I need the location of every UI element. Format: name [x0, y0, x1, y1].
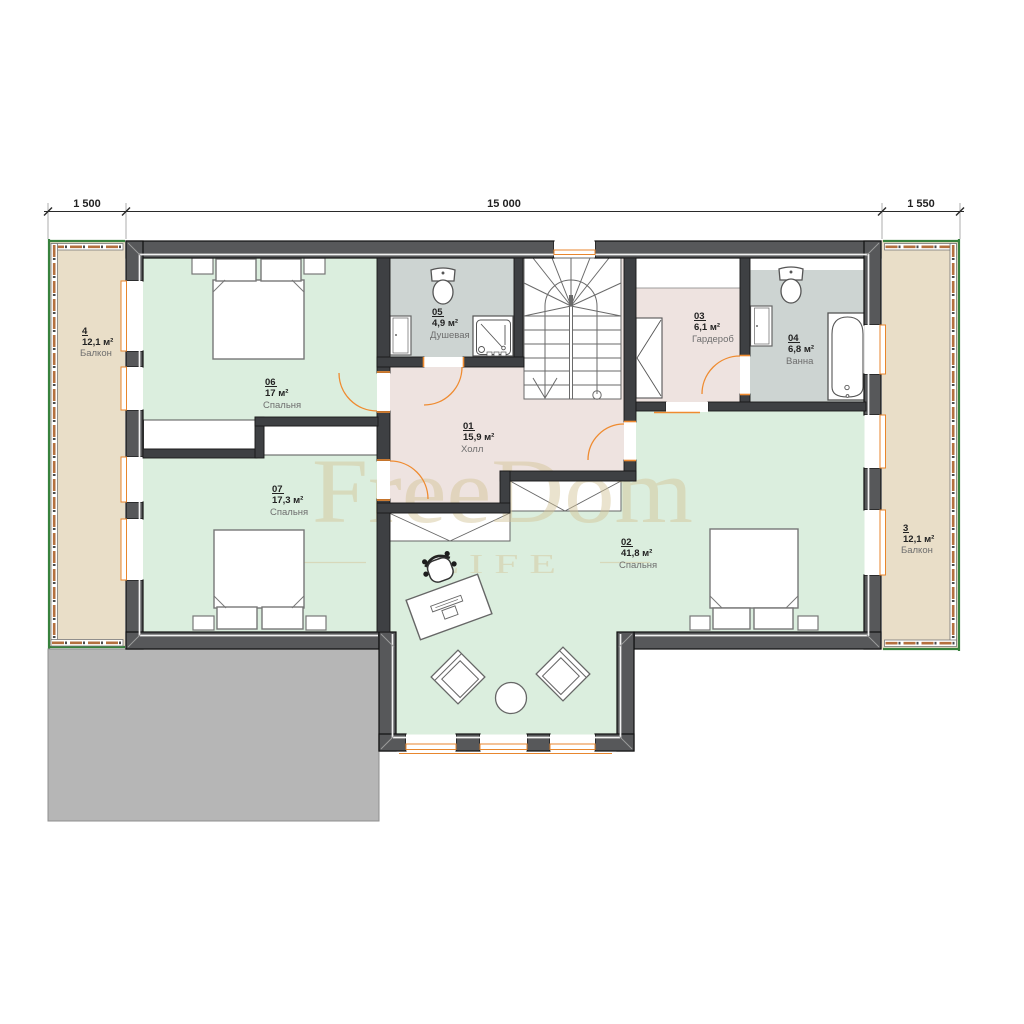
- svg-text:Спальня: Спальня: [270, 507, 308, 518]
- svg-text:Душевая: Душевая: [430, 330, 470, 341]
- svg-text:Балкон: Балкон: [80, 348, 112, 359]
- svg-text:41,8 м²: 41,8 м²: [621, 548, 652, 559]
- svg-text:17 м²: 17 м²: [265, 388, 288, 399]
- svg-text:Балкон: Балкон: [901, 545, 933, 556]
- svg-text:4,9 м²: 4,9 м²: [432, 318, 458, 329]
- svg-text:Холл: Холл: [461, 444, 483, 455]
- svg-text:17,3 м²: 17,3 м²: [272, 495, 303, 506]
- svg-text:6,8 м²: 6,8 м²: [788, 344, 814, 355]
- svg-text:12,1 м²: 12,1 м²: [82, 337, 113, 348]
- svg-text:6,1 м²: 6,1 м²: [694, 322, 720, 333]
- svg-text:Гардероб: Гардероб: [692, 334, 734, 345]
- svg-text:15,9 м²: 15,9 м²: [463, 432, 494, 443]
- svg-text:15 000: 15 000: [487, 198, 521, 210]
- svg-text:Спальня: Спальня: [263, 400, 301, 411]
- svg-text:1 500: 1 500: [73, 198, 101, 210]
- svg-text:Ванна: Ванна: [786, 356, 814, 367]
- svg-text:1 550: 1 550: [907, 198, 935, 210]
- svg-text:Спальня: Спальня: [619, 560, 657, 571]
- svg-text:12,1 м²: 12,1 м²: [903, 534, 934, 545]
